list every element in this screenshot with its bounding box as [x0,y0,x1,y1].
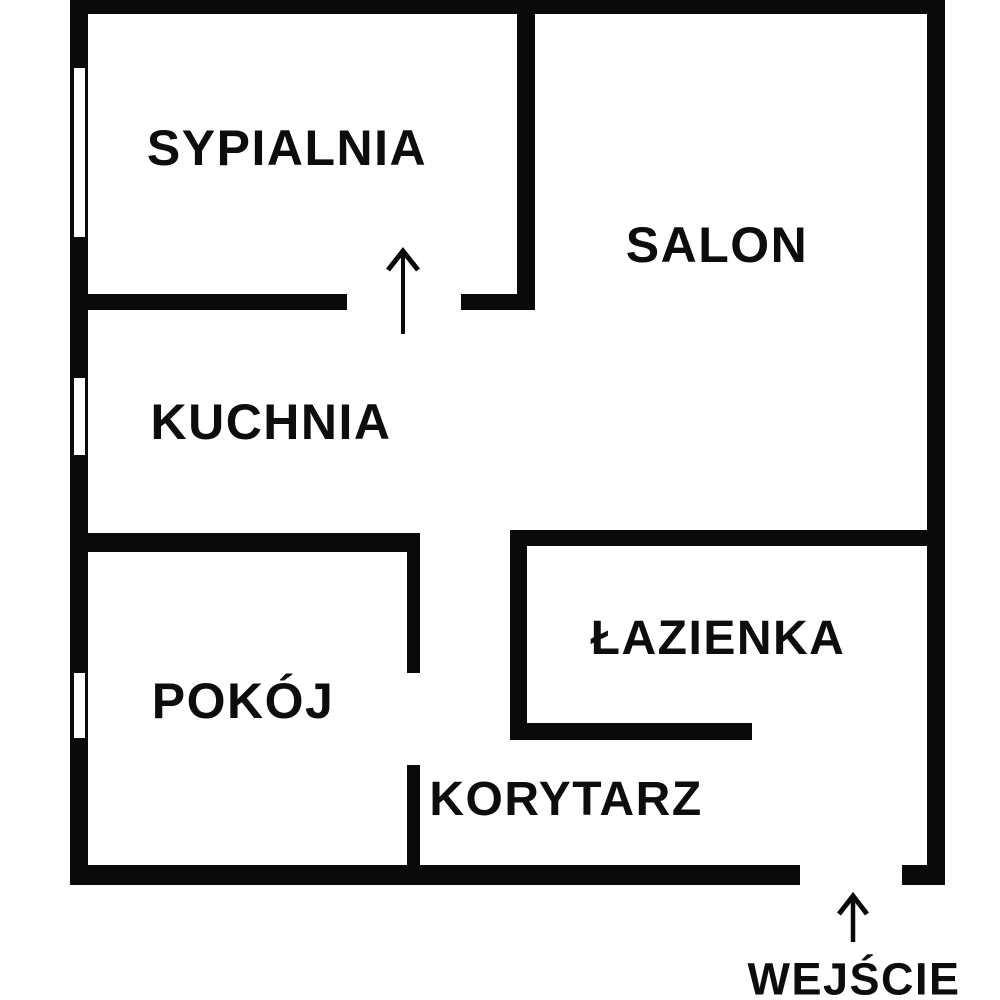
entrance-arrow-up-icon [834,892,872,944]
wall-pokoj-right-upper [407,533,420,673]
window-kuchnia [74,378,85,455]
wall-sypialnia-bottom-left [88,294,347,310]
wall-outer-bottom [70,865,800,885]
wall-outer-bottom-entrance-corner [902,865,945,885]
room-label-salon: SALON [626,220,809,270]
room-label-kuchnia: KUCHNIA [150,397,391,447]
window-sypialnia [74,68,85,237]
wall-lazienka-top [510,530,945,546]
wall-kuchnia-bottom [70,533,420,552]
wall-lazienka-left [510,530,527,740]
entrance-label: WEJŚCIE [747,957,960,1000]
room-label-sypialnia: SYPIALNIA [147,123,427,173]
room-label-korytarz: KORYTARZ [429,776,702,824]
wall-divider-sypialnia-salon [517,0,535,310]
wall-pokoj-right-lower [407,765,420,865]
room-label-lazienka: ŁAZIENKA [591,615,846,663]
wall-outer-right [927,0,945,885]
apartment-floor-plan: SYPIALNIA SALON KUCHNIA POKÓJ ŁAZIENKA K… [0,0,1000,1000]
window-pokoj [74,673,85,738]
wall-lazienka-bottom [510,723,752,740]
wall-outer-top [70,0,945,14]
room-label-pokoj: POKÓJ [152,676,335,726]
sypialnia-door-arrow-up-icon [381,246,425,336]
